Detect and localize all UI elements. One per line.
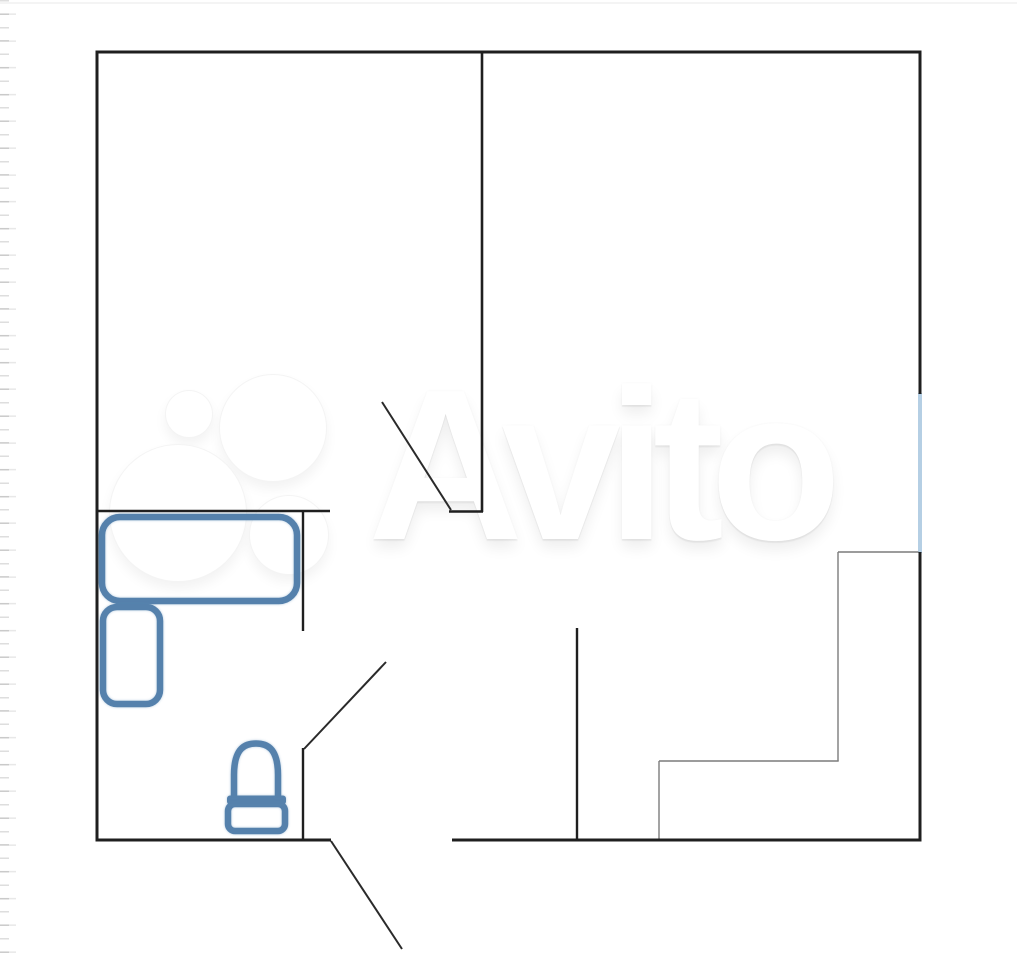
door-leaf-entrance	[331, 841, 402, 949]
bed	[102, 517, 297, 601]
door-leaf-living-room	[382, 402, 451, 510]
floorplan-svg	[0, 0, 1017, 960]
toilet-tank	[228, 804, 285, 831]
toilet-bowl	[234, 744, 278, 799]
nightstand	[103, 607, 160, 704]
floor-plan-image: Avito	[0, 0, 1017, 960]
door-leaf-bathroom	[304, 662, 386, 749]
